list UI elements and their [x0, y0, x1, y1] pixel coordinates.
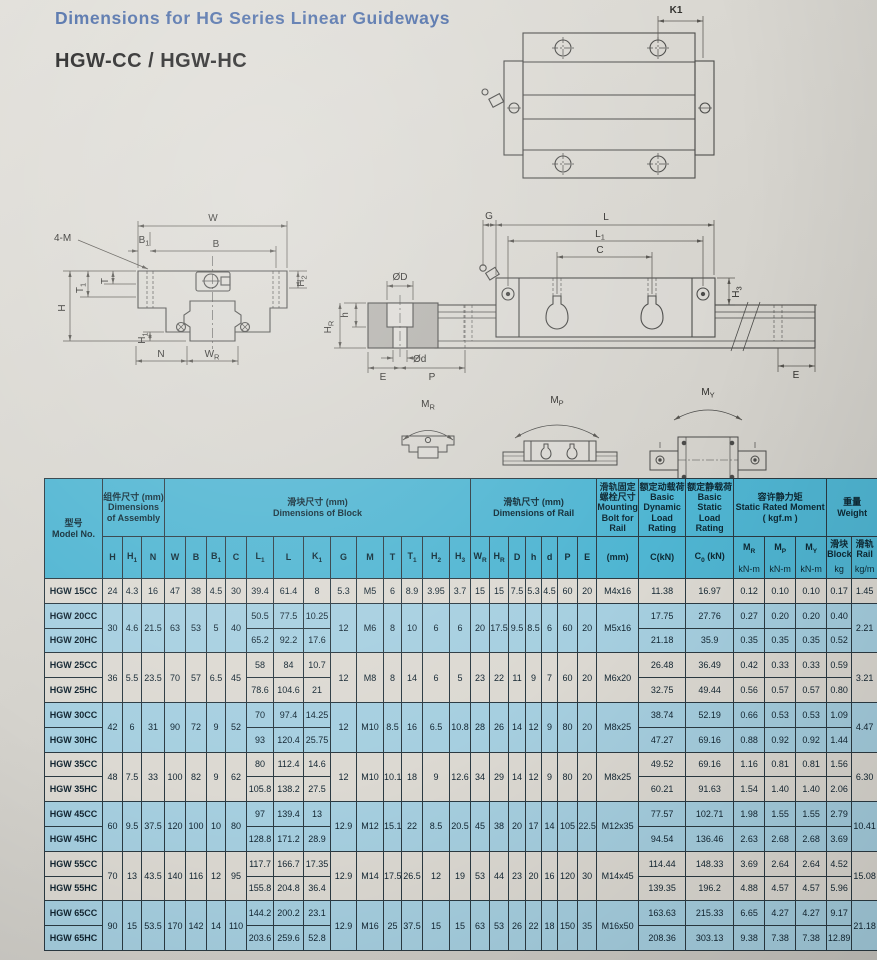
- cell-H3: 20.5: [450, 802, 471, 852]
- moment-label-mr: MR: [421, 399, 435, 412]
- header-col-WR: WR: [471, 537, 490, 579]
- moment-my-drawing: [650, 410, 766, 478]
- rail-side-view-drawing: [435, 265, 815, 351]
- header-unit-MY: kN-m: [796, 561, 827, 579]
- cell-C0: 148.33: [686, 851, 734, 876]
- cell-L: 61.4: [274, 579, 304, 604]
- header-group-2: 滑轨尺寸 (mm)Dimensions of Rail: [471, 479, 597, 537]
- cell-WR: 28: [471, 702, 490, 752]
- cell-MY: 1.55: [796, 802, 827, 827]
- cell-WR: 45: [471, 802, 490, 852]
- cell-wrail: 6.30: [852, 752, 877, 802]
- cell-WR: 23: [471, 653, 490, 703]
- cell-Cdyn: 163.63: [639, 901, 686, 926]
- cell-H3: 10.8: [450, 702, 471, 752]
- cell-L: 200.2: [274, 901, 304, 926]
- catalog-page: { "page": { "title": "Dimensions for HG …: [0, 0, 877, 960]
- cell-MY: 0.53: [796, 702, 827, 727]
- cell-Cdyn: 60.21: [639, 777, 686, 802]
- table-row-hgw-20cc: HGW 20CC304.621.5635354050.577.510.2512M…: [45, 603, 877, 628]
- cell-bolt: M5x16: [597, 603, 639, 653]
- cell-E: 20: [578, 702, 597, 752]
- cell-MR: 0.12: [734, 579, 765, 604]
- dim-label-k1: K1: [670, 5, 683, 16]
- cell-K1: 21: [304, 678, 331, 703]
- dim-label-l: L: [603, 212, 609, 223]
- cell-H1: 13: [123, 851, 142, 901]
- cell-Cdyn: 38.74: [639, 702, 686, 727]
- cell-H: 60: [103, 802, 123, 852]
- cell-L: 112.4: [274, 752, 304, 777]
- cell-L: 139.4: [274, 802, 304, 827]
- cell-MY: 0.92: [796, 727, 827, 752]
- cell-HR: 26: [490, 702, 509, 752]
- cell-HR: 29: [490, 752, 509, 802]
- cell-C0: 35.9: [686, 628, 734, 653]
- cell-H2: 15: [423, 901, 450, 951]
- cell-P: 120: [558, 851, 578, 901]
- cell-N: 31: [142, 702, 165, 752]
- cell-B: 72: [186, 702, 207, 752]
- cell-MR: 4.88: [734, 876, 765, 901]
- cell-MY: 0.35: [796, 628, 827, 653]
- cell-d: 18: [542, 901, 558, 951]
- cell-L1: 65.2: [247, 628, 274, 653]
- cell-K1: 17.6: [304, 628, 331, 653]
- cell-wrail: 2.21: [852, 603, 877, 653]
- cell-MP: 0.57: [765, 678, 796, 703]
- cell-G: 12.9: [331, 802, 357, 852]
- cell-WR: 20: [471, 603, 490, 653]
- cell-P: 105: [558, 802, 578, 852]
- cell-L: 97.4: [274, 702, 304, 727]
- cell-WR: 34: [471, 752, 490, 802]
- cell-M: M16: [357, 901, 384, 951]
- cell-M: M14: [357, 851, 384, 901]
- header-unit-wblk: kg: [827, 561, 852, 579]
- cell-L: 171.2: [274, 826, 304, 851]
- model-cell: HGW 15CC: [45, 579, 103, 604]
- header-group-1: 滑块尺寸 (mm)Dimensions of Block: [165, 479, 471, 537]
- cell-H3: 5: [450, 653, 471, 703]
- cell-L1: 97: [247, 802, 274, 827]
- cell-d: 6: [542, 603, 558, 653]
- cell-MY: 4.27: [796, 901, 827, 926]
- cell-MR: 6.65: [734, 901, 765, 926]
- cell-MP: 0.53: [765, 702, 796, 727]
- cell-H2: 3.95: [423, 579, 450, 604]
- cell-H3: 15: [450, 901, 471, 951]
- cell-C0: 196.2: [686, 876, 734, 901]
- cell-W: 140: [165, 851, 186, 901]
- cell-N: 43.5: [142, 851, 165, 901]
- dim-label-t1: T1: [75, 283, 88, 293]
- cell-MP: 0.33: [765, 653, 796, 678]
- cell-P: 150: [558, 901, 578, 951]
- cell-D: 9.5: [509, 603, 526, 653]
- dim-label-e-right: E: [793, 370, 800, 381]
- cell-MP: 1.40: [765, 777, 796, 802]
- cell-N: 37.5: [142, 802, 165, 852]
- cell-h: 5.3: [526, 579, 542, 604]
- cell-H: 30: [103, 603, 123, 653]
- cell-K1: 52.8: [304, 926, 331, 951]
- cell-W: 47: [165, 579, 186, 604]
- mounting-hole-icon: [552, 153, 574, 175]
- cell-Cdyn: 21.18: [639, 628, 686, 653]
- cell-K1: 8: [304, 579, 331, 604]
- cell-D: 23: [509, 851, 526, 901]
- cell-G: 5.3: [331, 579, 357, 604]
- spec-table-container: 型号Model No.组件尺寸 (mm)Dimensions of Assemb…: [44, 478, 877, 951]
- cell-H: 48: [103, 752, 123, 802]
- cell-wrail: 15.08: [852, 851, 877, 901]
- table-row-hgw-25cc: HGW 25CC365.523.570576.545588410.712M881…: [45, 653, 877, 678]
- cell-bolt: M12x35: [597, 802, 639, 852]
- cell-C: 95: [226, 851, 247, 901]
- cell-wblk: 0.80: [827, 678, 852, 703]
- cell-D: 7.5: [509, 579, 526, 604]
- header-col-h: h: [526, 537, 542, 579]
- cell-D: 26: [509, 901, 526, 951]
- cell-H3: 19: [450, 851, 471, 901]
- cell-MR: 0.27: [734, 603, 765, 628]
- cell-L: 104.6: [274, 678, 304, 703]
- dim-label-e-left: E: [380, 372, 387, 383]
- header-col-H2: H2: [423, 537, 450, 579]
- cell-K1: 23.1: [304, 901, 331, 926]
- header-col-M: M: [357, 537, 384, 579]
- model-cell: HGW 25HC: [45, 678, 103, 703]
- mounting-hole-icon: [552, 37, 574, 59]
- cell-MP: 7.38: [765, 926, 796, 951]
- cell-H3: 3.7: [450, 579, 471, 604]
- cell-MP: 2.68: [765, 826, 796, 851]
- header-unit-MP: kN-m: [765, 561, 796, 579]
- cell-B1: 10: [207, 802, 226, 852]
- header-unit-MR: kN-m: [734, 561, 765, 579]
- cell-L1: 128.8: [247, 826, 274, 851]
- moment-label-mp: MP: [550, 395, 563, 408]
- cell-G: 12: [331, 702, 357, 752]
- cell-MP: 4.27: [765, 901, 796, 926]
- cell-B: 38: [186, 579, 207, 604]
- header-col-L1: L1: [247, 537, 274, 579]
- cell-M: M10: [357, 752, 384, 802]
- dim-label-h3: H3: [731, 286, 744, 297]
- cell-N: 16: [142, 579, 165, 604]
- cell-M: M12: [357, 802, 384, 852]
- cell-C: 62: [226, 752, 247, 802]
- cell-M: M8: [357, 653, 384, 703]
- cell-H2: 8.5: [423, 802, 450, 852]
- cell-T: 10.1: [384, 752, 402, 802]
- cell-MR: 3.69: [734, 851, 765, 876]
- cell-wblk: 2.79: [827, 802, 852, 827]
- table-row-hgw-65cc: HGW 65CC901553.517014214110144.2200.223.…: [45, 901, 877, 926]
- cell-C0: 102.71: [686, 802, 734, 827]
- cell-L: 259.6: [274, 926, 304, 951]
- model-cell: HGW 20HC: [45, 628, 103, 653]
- cell-B: 116: [186, 851, 207, 901]
- cell-H: 24: [103, 579, 123, 604]
- header-group-4: 额定动载荷Basic Dynamic Load Rating: [639, 479, 686, 537]
- cell-M: M10: [357, 702, 384, 752]
- cell-L1: 105.8: [247, 777, 274, 802]
- cell-B1: 14: [207, 901, 226, 951]
- cell-MR: 1.98: [734, 802, 765, 827]
- cell-wblk: 4.52: [827, 851, 852, 876]
- header-col-wrail: 滑轨 Rail: [852, 537, 877, 561]
- spec-table: 型号Model No.组件尺寸 (mm)Dimensions of Assemb…: [44, 478, 877, 951]
- cell-MR: 9.38: [734, 926, 765, 951]
- header-col-MY: MY: [796, 537, 827, 561]
- cell-M: M5: [357, 579, 384, 604]
- header-col-D: D: [509, 537, 526, 579]
- cell-wblk: 1.44: [827, 727, 852, 752]
- cell-h: 22: [526, 901, 542, 951]
- cell-MR: 0.56: [734, 678, 765, 703]
- cell-B1: 12: [207, 851, 226, 901]
- cell-d: 14: [542, 802, 558, 852]
- cell-E: 20: [578, 653, 597, 703]
- cell-wblk: 1.56: [827, 752, 852, 777]
- cell-W: 120: [165, 802, 186, 852]
- moment-label-my: MY: [701, 387, 714, 400]
- cell-wblk: 0.52: [827, 628, 852, 653]
- dim-label-t: T: [100, 278, 111, 284]
- cell-WR: 53: [471, 851, 490, 901]
- grease-nipple-icon: [482, 89, 504, 107]
- cell-E: 22.5: [578, 802, 597, 852]
- cell-D: 14: [509, 702, 526, 752]
- cell-h: 12: [526, 752, 542, 802]
- header-group-0: 组件尺寸 (mm)Dimensions of Assembly: [103, 479, 165, 537]
- cell-d: 16: [542, 851, 558, 901]
- cell-T: 15.1: [384, 802, 402, 852]
- model-cell: HGW 30CC: [45, 702, 103, 727]
- cell-wblk: 1.09: [827, 702, 852, 727]
- cell-T1: 37.5: [402, 901, 423, 951]
- header-col-MP: MP: [765, 537, 796, 561]
- cell-Cdyn: 77.57: [639, 802, 686, 827]
- dim-label-4m: 4-M: [54, 233, 71, 244]
- front-section-dimensions: [63, 221, 307, 365]
- mounting-hole-icon: [647, 37, 669, 59]
- cell-H1: 4.3: [123, 579, 142, 604]
- cell-MR: 0.42: [734, 653, 765, 678]
- header-col-L: L: [274, 537, 304, 579]
- cell-G: 12: [331, 603, 357, 653]
- cell-C: 80: [226, 802, 247, 852]
- cell-D: 11: [509, 653, 526, 703]
- dim-label-hr: HR: [323, 320, 336, 333]
- cell-Cdyn: 49.52: [639, 752, 686, 777]
- header-model: 型号Model No.: [45, 479, 103, 579]
- cell-T: 8: [384, 603, 402, 653]
- cell-wrail: 21.18: [852, 901, 877, 951]
- cell-MP: 0.10: [765, 579, 796, 604]
- cell-P: 80: [558, 752, 578, 802]
- cell-C: 52: [226, 702, 247, 752]
- cell-L: 166.7: [274, 851, 304, 876]
- cell-C0: 27.76: [686, 603, 734, 628]
- model-cell: HGW 55CC: [45, 851, 103, 876]
- cell-G: 12: [331, 653, 357, 703]
- cell-MY: 0.33: [796, 653, 827, 678]
- cell-K1: 28.9: [304, 826, 331, 851]
- table-row-hgw-35cc: HGW 35CC487.5331008296280112.414.612M101…: [45, 752, 877, 777]
- cell-C: 45: [226, 653, 247, 703]
- cell-T1: 16: [402, 702, 423, 752]
- cell-h: 17: [526, 802, 542, 852]
- cell-h: 12: [526, 702, 542, 752]
- header-col-H1: H1: [123, 537, 142, 579]
- cell-D: 14: [509, 752, 526, 802]
- cell-L1: 50.5: [247, 603, 274, 628]
- dim-label-c: C: [596, 245, 603, 256]
- cell-L1: 155.8: [247, 876, 274, 901]
- cell-wblk: 0.40: [827, 603, 852, 628]
- header-col-T: T: [384, 537, 402, 579]
- cell-K1: 13: [304, 802, 331, 827]
- cell-MP: 2.64: [765, 851, 796, 876]
- cell-L: 84: [274, 653, 304, 678]
- cell-C: 110: [226, 901, 247, 951]
- cell-L1: 70: [247, 702, 274, 727]
- cell-T: 17.5: [384, 851, 402, 901]
- cell-h: 8.5: [526, 603, 542, 653]
- cell-wblk: 9.17: [827, 901, 852, 926]
- cell-C: 30: [226, 579, 247, 604]
- cell-Cdyn: 32.75: [639, 678, 686, 703]
- cell-MP: 0.20: [765, 603, 796, 628]
- cell-N: 23.5: [142, 653, 165, 703]
- header-col-C: C: [226, 537, 247, 579]
- header-col-C0: C0 (kN): [686, 537, 734, 579]
- cell-H1: 15: [123, 901, 142, 951]
- technical-drawings: K1: [0, 0, 877, 478]
- cell-MY: 0.57: [796, 678, 827, 703]
- cell-Cdyn: 17.75: [639, 603, 686, 628]
- cell-H2: 6: [423, 653, 450, 703]
- cell-H1: 4.6: [123, 603, 142, 653]
- cell-wblk: 0.59: [827, 653, 852, 678]
- cell-H1: 6: [123, 702, 142, 752]
- cell-bolt: M4x16: [597, 579, 639, 604]
- cell-L: 204.8: [274, 876, 304, 901]
- cell-d: 9: [542, 702, 558, 752]
- cell-K1: 27.5: [304, 777, 331, 802]
- model-cell: HGW 65CC: [45, 901, 103, 926]
- dim-label-od-small: Ød: [413, 354, 426, 365]
- cell-L1: 39.4: [247, 579, 274, 604]
- cell-MY: 0.10: [796, 579, 827, 604]
- cell-bolt: M8x25: [597, 702, 639, 752]
- cell-B1: 4.5: [207, 579, 226, 604]
- dim-label-b1: B1: [139, 235, 150, 248]
- cell-MY: 1.40: [796, 777, 827, 802]
- cell-Cdyn: 139.35: [639, 876, 686, 901]
- header-col-B1: B1: [207, 537, 226, 579]
- cell-G: 12.9: [331, 901, 357, 951]
- header-col-W: W: [165, 537, 186, 579]
- table-row-hgw-15cc: HGW 15CC244.31647384.53039.461.485.3M568…: [45, 579, 877, 604]
- dim-label-g: G: [485, 211, 493, 222]
- cell-K1: 10.7: [304, 653, 331, 678]
- dim-label-p: P: [429, 372, 436, 383]
- cell-P: 60: [558, 579, 578, 604]
- header-col-P: P: [558, 537, 578, 579]
- cell-h: 20: [526, 851, 542, 901]
- cell-W: 70: [165, 653, 186, 703]
- cell-T1: 10: [402, 603, 423, 653]
- cell-T: 8: [384, 653, 402, 703]
- model-cell: HGW 35CC: [45, 752, 103, 777]
- cell-WR: 63: [471, 901, 490, 951]
- cell-MR: 0.35: [734, 628, 765, 653]
- cell-K1: 25.75: [304, 727, 331, 752]
- dim-label-n: N: [157, 349, 164, 360]
- cell-HR: 22: [490, 653, 509, 703]
- cell-H2: 6: [423, 603, 450, 653]
- cell-B: 53: [186, 603, 207, 653]
- cell-H3: 6: [450, 603, 471, 653]
- cell-N: 53.5: [142, 901, 165, 951]
- cell-T1: 8.9: [402, 579, 423, 604]
- cell-C0: 69.16: [686, 752, 734, 777]
- cell-B1: 5: [207, 603, 226, 653]
- cell-E: 20: [578, 752, 597, 802]
- header-group-5: 额定静载荷Basic Static Load Rating: [686, 479, 734, 537]
- cell-MR: 0.88: [734, 727, 765, 752]
- cell-W: 170: [165, 901, 186, 951]
- cell-wblk: 3.69: [827, 826, 852, 851]
- cell-wrail: 1.45: [852, 579, 877, 604]
- cell-MP: 4.57: [765, 876, 796, 901]
- cell-H: 42: [103, 702, 123, 752]
- cell-bolt: M16x50: [597, 901, 639, 951]
- dim-label-od: ØD: [393, 272, 408, 283]
- cell-E: 20: [578, 603, 597, 653]
- cell-HR: 44: [490, 851, 509, 901]
- retainer-screw-icon: [241, 323, 250, 332]
- table-row-hgw-55cc: HGW 55CC701343.51401161295117.7166.717.3…: [45, 851, 877, 876]
- cell-H2: 6.5: [423, 702, 450, 752]
- cell-T: 6: [384, 579, 402, 604]
- cell-P: 80: [558, 702, 578, 752]
- cell-Cdyn: 47.27: [639, 727, 686, 752]
- cell-L: 92.2: [274, 628, 304, 653]
- cell-B1: 6.5: [207, 653, 226, 703]
- cell-d: 7: [542, 653, 558, 703]
- cell-L1: 80: [247, 752, 274, 777]
- model-cell: HGW 65HC: [45, 926, 103, 951]
- cell-MY: 0.20: [796, 603, 827, 628]
- cell-h: 9: [526, 653, 542, 703]
- cell-G: 12.9: [331, 851, 357, 901]
- cell-bolt: M14x45: [597, 851, 639, 901]
- header-col-bolt: (mm): [597, 537, 639, 579]
- header-col-d: d: [542, 537, 558, 579]
- cell-d: 9: [542, 752, 558, 802]
- model-cell: HGW 20CC: [45, 603, 103, 628]
- cell-L1: 144.2: [247, 901, 274, 926]
- dim-label-b: B: [213, 239, 220, 250]
- cell-MR: 1.54: [734, 777, 765, 802]
- cell-B: 57: [186, 653, 207, 703]
- cell-HR: 38: [490, 802, 509, 852]
